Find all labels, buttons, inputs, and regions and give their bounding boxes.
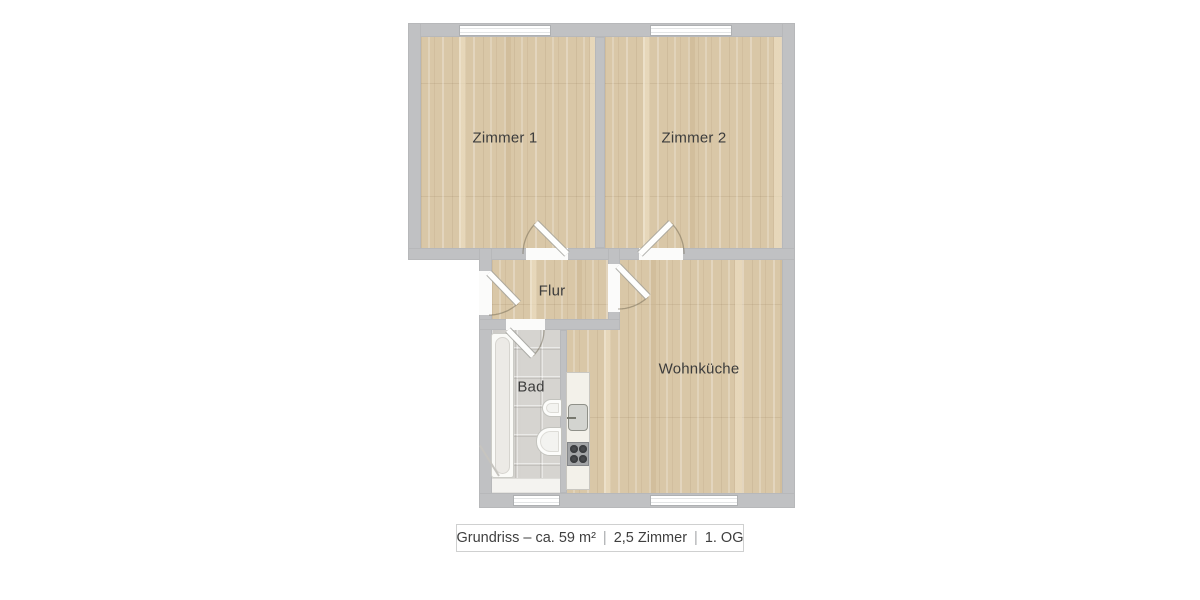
toilet-bowl bbox=[540, 431, 559, 452]
room-label-wohnkueche: Wohnküche bbox=[659, 361, 740, 378]
burner-icon bbox=[570, 455, 578, 463]
window-zimmer2 bbox=[650, 25, 732, 36]
window-bad bbox=[513, 495, 560, 506]
burner-icon bbox=[570, 445, 578, 453]
kitchen-sink-icon bbox=[568, 404, 588, 431]
door-opening-bad bbox=[506, 319, 545, 330]
kitchen-counter bbox=[566, 372, 590, 490]
room-label-flur: Flur bbox=[539, 283, 566, 300]
burner-icon bbox=[579, 455, 587, 463]
washbasin-bowl bbox=[546, 403, 559, 413]
stove-icon bbox=[567, 442, 589, 466]
caption-box: Grundriss – ca. 59 m² | 2,5 Zimmer | 1. … bbox=[456, 524, 744, 552]
faucet-icon bbox=[567, 417, 576, 419]
caption-separator: | bbox=[596, 530, 614, 546]
wall-below-rooms bbox=[408, 248, 795, 260]
window-wohnkueche bbox=[650, 495, 738, 506]
window-zimmer1 bbox=[459, 25, 551, 36]
bad-window-sill bbox=[492, 478, 560, 493]
door-opening-entry bbox=[479, 271, 492, 315]
washbasin-icon bbox=[542, 399, 562, 417]
wall-between-zimmer1-zimmer2 bbox=[595, 37, 605, 248]
door-opening-wohnkueche bbox=[608, 264, 620, 312]
bathtub-icon bbox=[491, 333, 514, 478]
burner-icon bbox=[579, 445, 587, 453]
caption-floor: 1. OG bbox=[705, 530, 744, 546]
room-label-zimmer2: Zimmer 2 bbox=[662, 130, 727, 147]
door-opening-zimmer1 bbox=[526, 248, 568, 260]
toilet-icon bbox=[536, 427, 562, 456]
floor-plan-page: Zimmer 1 Zimmer 2 Flur Bad Wohnküche Gru… bbox=[0, 0, 1200, 600]
caption-rooms: 2,5 Zimmer bbox=[614, 530, 687, 546]
room-label-bad: Bad bbox=[517, 379, 544, 396]
caption-area: Grundriss – ca. 59 m² bbox=[457, 530, 596, 546]
wall-flur-bad bbox=[479, 319, 620, 330]
wall-right bbox=[782, 23, 795, 508]
door-opening-zimmer2 bbox=[639, 248, 683, 260]
wall-left bbox=[408, 23, 421, 260]
caption-separator: | bbox=[687, 530, 705, 546]
bathtub-basin bbox=[495, 337, 510, 474]
room-label-zimmer1: Zimmer 1 bbox=[473, 130, 538, 147]
